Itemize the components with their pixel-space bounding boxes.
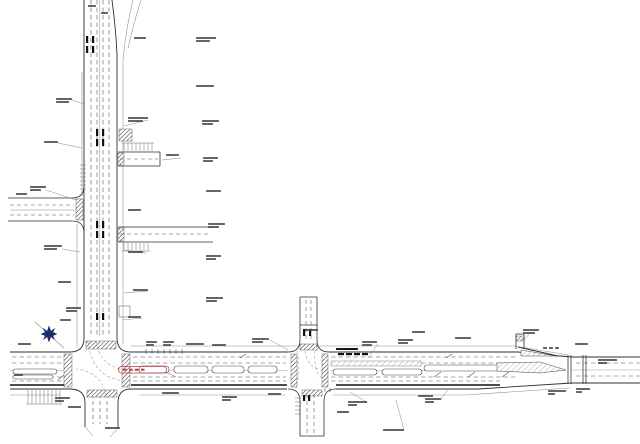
north-arrow-icon (35, 322, 64, 348)
road-plan-canvas (0, 0, 640, 444)
road-plan-drawing (0, 0, 640, 444)
section-lines (568, 355, 586, 384)
side-streets (8, 152, 524, 436)
median-islands (13, 350, 566, 379)
leader-lines (46, 100, 530, 430)
